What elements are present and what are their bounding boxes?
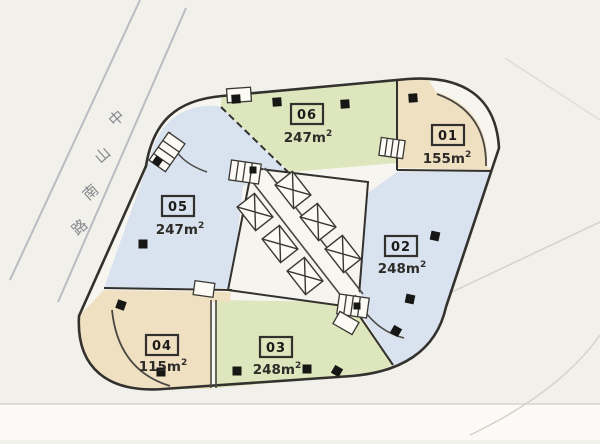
bottom-road-band (0, 404, 600, 440)
column-marker (139, 240, 148, 249)
column-marker (303, 365, 312, 374)
unit-06-area: 247m2 (284, 129, 333, 146)
unit-01-number: 01 (438, 129, 458, 144)
unit-02-number: 02 (391, 240, 411, 255)
column-marker (405, 294, 416, 305)
unit-05-number: 05 (168, 200, 188, 215)
column-marker (354, 303, 361, 310)
column-marker (430, 231, 441, 242)
unit-04-area: 115m2 (139, 358, 188, 375)
unit-06-number: 06 (297, 108, 317, 123)
column-marker (408, 93, 418, 103)
unit-02-area: 248m2 (378, 260, 427, 277)
floor-plan-canvas: 中 山 南 路 (0, 0, 600, 440)
column-marker (272, 97, 282, 107)
unit-03-area: 248m2 (253, 361, 302, 378)
column-marker (233, 367, 242, 376)
unit-03-number: 03 (266, 341, 286, 356)
column-marker (340, 99, 350, 109)
stair-upper-right (379, 137, 405, 158)
unit-01-area: 155m2 (423, 150, 472, 167)
wall-unit01-unit02 (397, 170, 492, 171)
unit-05-area: 247m2 (156, 221, 205, 238)
column-marker (250, 167, 257, 174)
unit-04-number: 04 (152, 339, 172, 354)
column-marker (231, 94, 241, 104)
service-box-left (193, 281, 215, 298)
